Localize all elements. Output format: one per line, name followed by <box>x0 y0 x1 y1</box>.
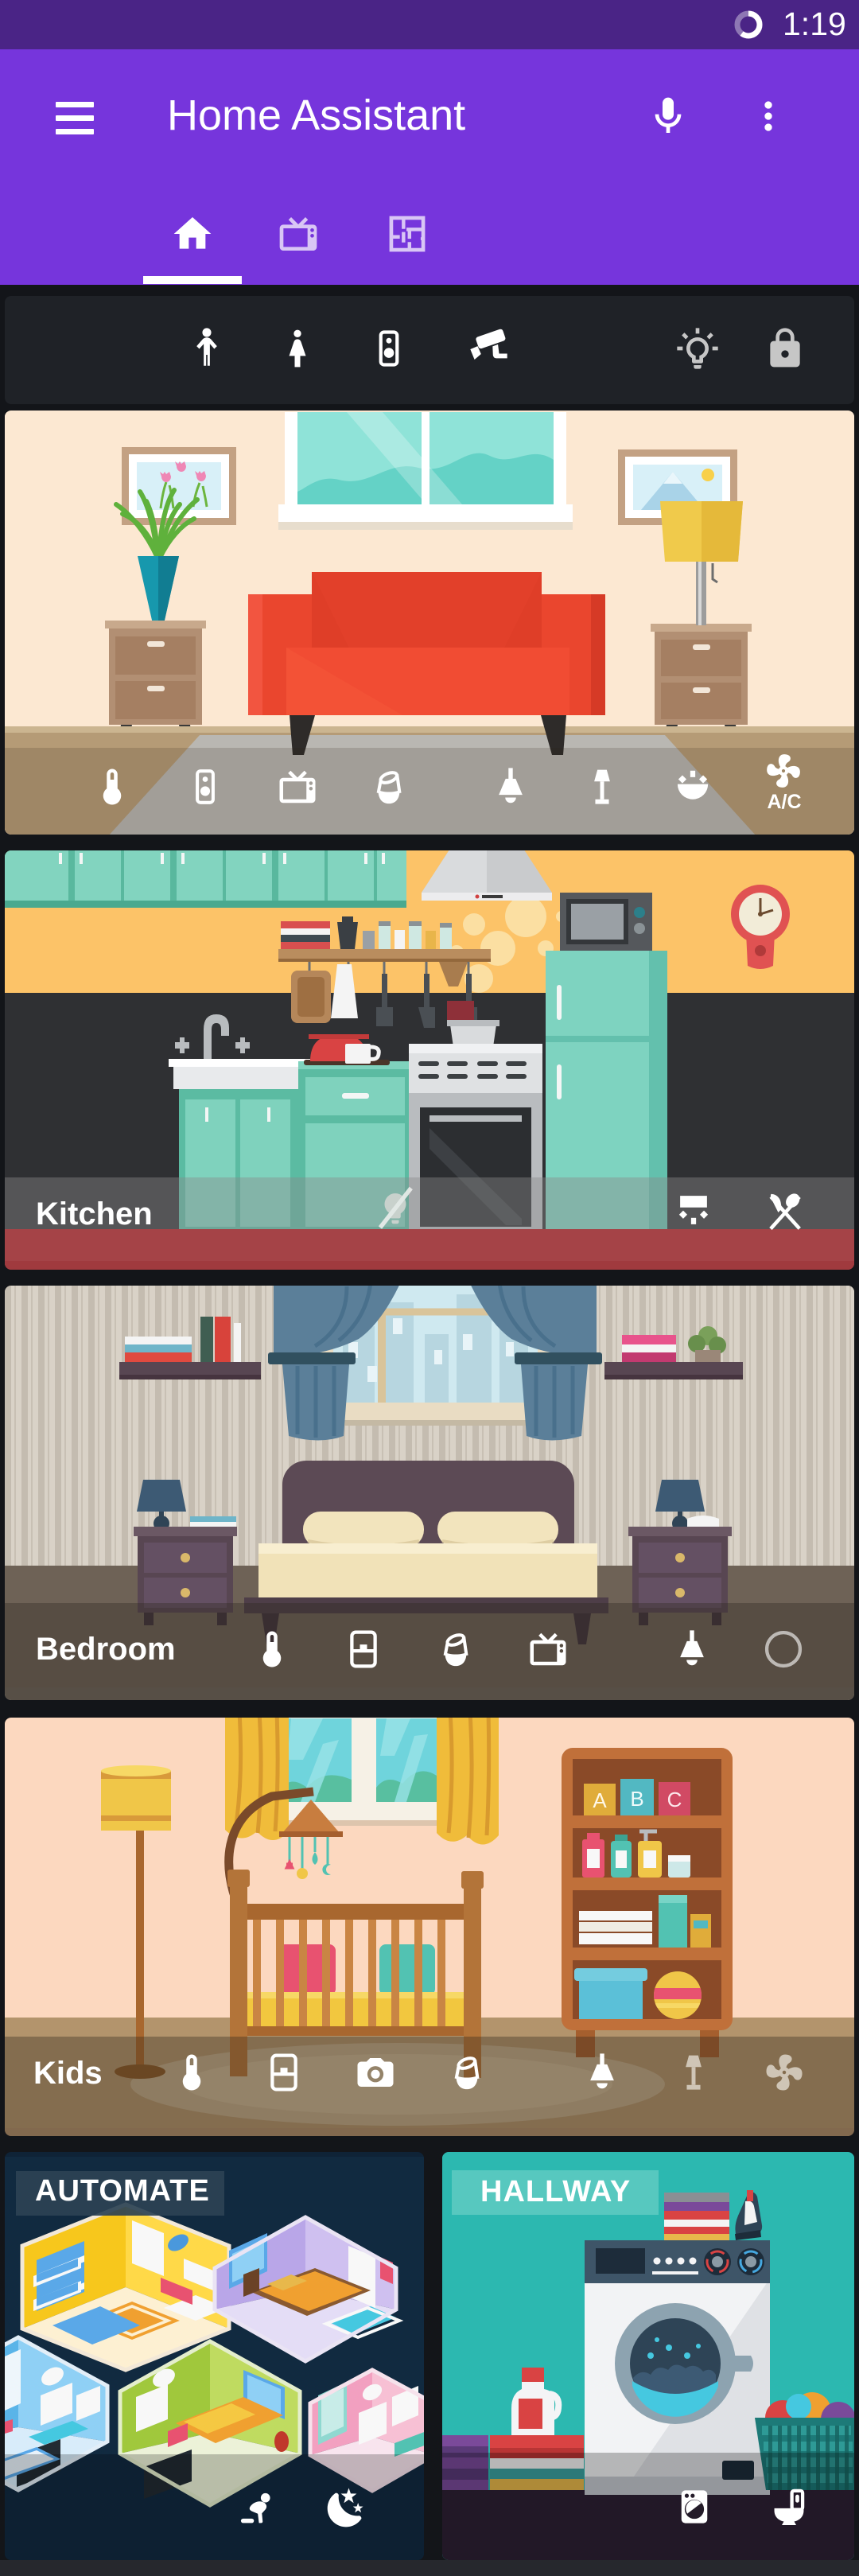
svg-text:B: B <box>630 1787 643 1811</box>
svg-text:A: A <box>593 1788 607 1812</box>
svg-text:C: C <box>667 1788 682 1811</box>
